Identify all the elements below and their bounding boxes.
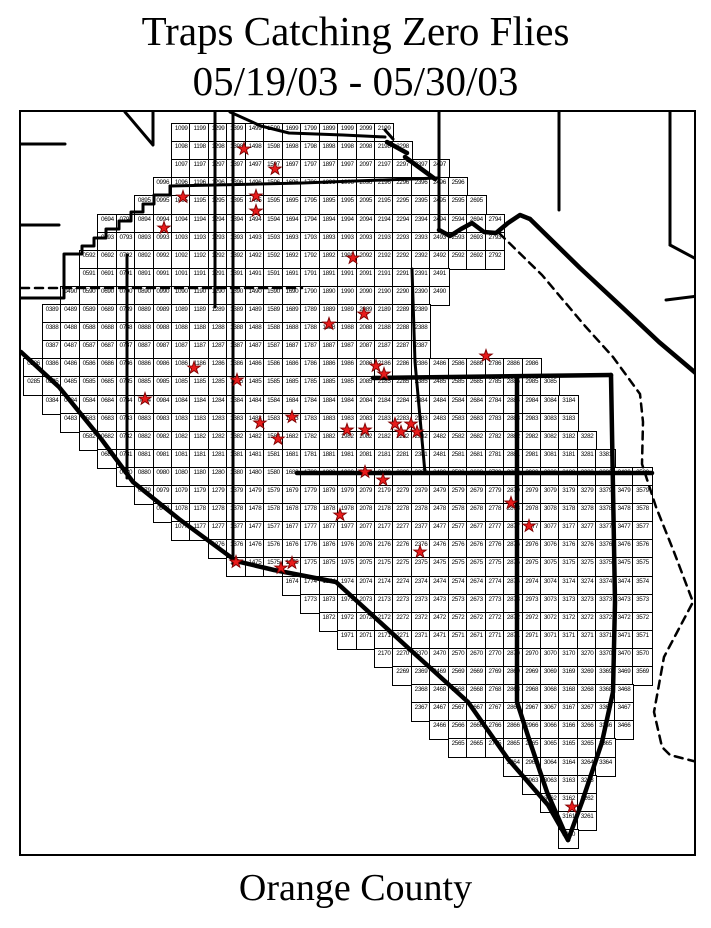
grid-cell-2384: 2384 [412,396,430,414]
grid-cell-1891: 1891 [320,269,338,287]
grid-cell-2882: 2882 [504,432,522,450]
grid-cell-1497: 1497 [246,160,264,178]
grid-cell-2478: 2478 [430,504,448,522]
grid-cell-3573: 3573 [633,595,651,613]
grid-cell-2884: 2884 [504,396,522,414]
grid-cell-2678: 2678 [467,504,485,522]
grid-cell-2296: 2296 [393,178,411,196]
grid-cell-2382: 2382 [412,432,430,450]
grid-cell-2771: 2771 [486,631,504,649]
grid-cell-1599: 1599 [264,124,282,142]
grid-cell-2280: 2280 [393,468,411,486]
grid-cell-1285: 1285 [209,377,227,395]
grid-cell-2286: 2286 [393,359,411,377]
grid-cell-0685: 0685 [98,377,116,395]
grid-cell-2394: 2394 [412,215,430,233]
grid-cell-1981: 1981 [338,450,356,468]
grid-cell-2783: 2783 [486,414,504,432]
grid-cell-1995: 1995 [338,196,356,214]
grid-cell-1578: 1578 [264,504,282,522]
grid-cell-1691: 1691 [283,269,301,287]
grid-cell-0991: 0991 [154,269,172,287]
grid-cell-1492: 1492 [246,251,264,269]
grid-cell-0790: 0790 [117,287,135,305]
grid-cell-1683: 1683 [283,414,301,432]
grid-cell-1991: 1991 [338,269,356,287]
grid-cell-1384: 1384 [227,396,245,414]
grid-cell-2870: 2870 [504,649,522,667]
grid-cell-1395: 1395 [227,196,245,214]
grid-cell-3161: 3161 [559,812,577,830]
grid-cell-1386: 1386 [227,359,245,377]
grid-cell-1775: 1775 [301,558,319,576]
grid-cell-3062: 3062 [541,794,559,812]
grid-cell-1793: 1793 [301,233,319,251]
grid-cell-0883: 0883 [135,414,153,432]
grid-cell-3579: 3579 [633,486,651,504]
grid-cell-2974: 2974 [523,577,541,595]
grid-cell-1787: 1787 [301,341,319,359]
grid-cell-2493: 2493 [430,233,448,251]
grid-cell-1185: 1185 [190,377,208,395]
grid-cell-2596: 2596 [449,178,467,196]
grid-cell-2479: 2479 [430,486,448,504]
grid-cell-2078: 2078 [357,504,375,522]
grid-cell-2181: 2181 [375,450,393,468]
grid-cell-2475: 2475 [430,558,448,576]
grid-cell-2676: 2676 [467,540,485,558]
grid-cell-1394: 1394 [227,215,245,233]
grid-cell-2874: 2874 [504,577,522,595]
grid-cell-1982: 1982 [338,432,356,450]
grid-cell-1890: 1890 [320,287,338,305]
grid-cell-2370: 2370 [412,649,430,667]
grid-cell-1095: 1095 [172,196,190,214]
grid-cell-1186: 1186 [190,359,208,377]
grid-cell-2271: 2271 [393,631,411,649]
grid-cell-2775: 2775 [486,558,504,576]
grid-cell-2978: 2978 [523,504,541,522]
grid-cell-3367: 3367 [596,703,614,721]
grid-cell-1777: 1777 [301,522,319,540]
grid-cell-3065: 3065 [541,739,559,757]
grid-cell-2386: 2386 [412,359,430,377]
grid-cell-2371: 2371 [412,631,430,649]
grid-cell-0989: 0989 [154,305,172,323]
grid-cell-1783: 1783 [301,414,319,432]
grid-cell-0285: 0285 [24,377,42,395]
grid-cell-1375: 1375 [227,558,245,576]
grid-cell-1985: 1985 [338,377,356,395]
grid-cell-0893: 0893 [135,233,153,251]
grid-cell-3172: 3172 [559,613,577,631]
grid-cell-2693: 2693 [467,233,485,251]
grid-cell-2175: 2175 [375,558,393,576]
grid-cell-2298: 2298 [393,142,411,160]
grid-cell-1677: 1677 [283,522,301,540]
grid-cell-2865: 2865 [504,739,522,757]
grid-cell-2076: 2076 [357,540,375,558]
grid-cell-2980: 2980 [523,468,541,486]
grid-cell-1195: 1195 [190,196,208,214]
grid-cell-1182: 1182 [190,432,208,450]
grid-cell-1994: 1994 [338,215,356,233]
grid-cell-2376: 2376 [412,540,430,558]
grid-cell-3169: 3169 [559,667,577,685]
grid-cell-3364: 3364 [596,758,614,776]
grid-cell-2871: 2871 [504,631,522,649]
grid-cell-0990: 0990 [154,287,172,305]
grid-cell-2091: 2091 [357,269,375,287]
grid-cell-3267: 3267 [578,703,596,721]
grid-cell-2466: 2466 [430,721,448,739]
grid-cell-2188: 2188 [375,323,393,341]
grid-cell-3074: 3074 [541,577,559,595]
grid-cell-2570: 2570 [449,649,467,667]
grid-cell-3069: 3069 [541,667,559,685]
grid-cell-2864: 2864 [504,758,522,776]
grid-cell-1087: 1087 [172,341,190,359]
grid-cell-3183: 3183 [559,414,577,432]
grid-cell-2174: 2174 [375,577,393,595]
grid-cell-3373: 3373 [596,595,614,613]
grid-cell-2368: 2368 [412,685,430,703]
grid-cell-1479: 1479 [246,486,264,504]
grid-cell-2084: 2084 [357,396,375,414]
grid-cell-2081: 2081 [357,450,375,468]
grid-cell-1684: 1684 [283,396,301,414]
grid-cell-2583: 2583 [449,414,467,432]
grid-cell-0782: 0782 [117,432,135,450]
grid-cell-3277: 3277 [578,522,596,540]
grid-cell-1297: 1297 [209,160,227,178]
grid-cell-1784: 1784 [301,396,319,414]
grid-cell-0584: 0584 [80,396,98,414]
grid-cell-1598: 1598 [264,142,282,160]
grid-cell-2283: 2283 [393,414,411,432]
grid-cell-2784: 2784 [486,396,504,414]
grid-cell-3472: 3472 [615,613,633,631]
grid-cell-1588: 1588 [264,323,282,341]
grid-cell-3264: 3264 [578,758,596,776]
grid-cell-1680: 1680 [283,468,301,486]
grid-cell-1886: 1886 [320,359,338,377]
grid-cell-0786: 0786 [117,359,135,377]
grid-cell-3471: 3471 [615,631,633,649]
grid-cell-2595: 2595 [449,196,467,214]
grid-cell-2071: 2071 [357,631,375,649]
grid-cell-1685: 1685 [283,377,301,395]
grid-cell-1181: 1181 [190,450,208,468]
grid-cell-1284: 1284 [209,396,227,414]
grid-cell-1396: 1396 [227,178,245,196]
grid-cell-2385: 2385 [412,377,430,395]
grid-cell-0387: 0387 [43,341,61,359]
grid-cell-2074: 2074 [357,577,375,595]
grid-cell-3079: 3079 [541,486,559,504]
grid-cell-2194: 2194 [375,215,393,233]
grid-cell-1590: 1590 [264,287,282,305]
grid-cell-2866: 2866 [504,721,522,739]
grid-cell-2191: 2191 [375,269,393,287]
grid-cell-2079: 2079 [357,486,375,504]
grid-cell-2965: 2965 [523,739,541,757]
grid-cell-2875: 2875 [504,558,522,576]
grid-cell-0689: 0689 [98,305,116,323]
grid-cell-2097: 2097 [357,160,375,178]
grid-cell-1389: 1389 [227,305,245,323]
grid-cell-3380: 3380 [596,468,614,486]
grid-cell-3374: 3374 [596,577,614,595]
grid-cell-0994: 0994 [154,215,172,233]
grid-cell-2774: 2774 [486,577,504,595]
grid-cell-2276: 2276 [393,540,411,558]
grid-cell-1792: 1792 [301,251,319,269]
grid-cell-1682: 1682 [283,432,301,450]
grid-cell-1788: 1788 [301,323,319,341]
grid-cell-1088: 1088 [172,323,190,341]
grid-cell-1278: 1278 [209,504,227,522]
grid-cell-2979: 2979 [523,486,541,504]
grid-cell-3279: 3279 [578,486,596,504]
grid-cell-1695: 1695 [283,196,301,214]
grid-cell-1977: 1977 [338,522,356,540]
grid-cell-1983: 1983 [338,414,356,432]
grid-cell-1988: 1988 [338,323,356,341]
grid-cell-1281: 1281 [209,450,227,468]
grid-cell-1391: 1391 [227,269,245,287]
grid-cell-1291: 1291 [209,269,227,287]
grid-cell-1089: 1089 [172,305,190,323]
grid-cell-2665: 2665 [467,739,485,757]
grid-cell-0683: 0683 [98,414,116,432]
grid-cell-3080: 3080 [541,468,559,486]
grid-cell-0691: 0691 [98,269,116,287]
grid-cell-2881: 2881 [504,450,522,468]
grid-cell-2192: 2192 [375,251,393,269]
grid-cell-3063: 3063 [541,776,559,794]
grid-cell-1790: 1790 [301,287,319,305]
boundary-ne-horizontal [666,296,694,300]
grid-cell-1098: 1098 [172,142,190,160]
grid-cell-1694: 1694 [283,215,301,233]
grid-cell-1290: 1290 [209,287,227,305]
grid-cell-2969: 2969 [523,667,541,685]
grid-cell-0992: 0992 [154,251,172,269]
grid-cell-0385: 0385 [43,377,61,395]
grid-cell-0784: 0784 [117,396,135,414]
grid-cell-1190: 1190 [190,287,208,305]
grid-cell-2379: 2379 [412,486,430,504]
grid-cell-1880: 1880 [320,468,338,486]
grid-cell-0792: 0792 [117,251,135,269]
grid-cell-2272: 2272 [393,613,411,631]
grid-cell-0582: 0582 [80,432,98,450]
grid-cell-2963: 2963 [523,776,541,794]
grid-cell-2269: 2269 [393,667,411,685]
grid-cell-3477: 3477 [615,522,633,540]
grid-cell-1192: 1192 [190,251,208,269]
grid-cell-3280: 3280 [578,468,596,486]
grid-cell-0791: 0791 [117,269,135,287]
grid-cell-2586: 2586 [449,359,467,377]
grid-cell-0489: 0489 [61,305,79,323]
grid-cell-2496: 2496 [430,178,448,196]
grid-cell-1782: 1782 [301,432,319,450]
grid-cell-3466: 3466 [615,721,633,739]
grid-cell-2490: 2490 [430,287,448,305]
grid-cell-1980: 1980 [338,468,356,486]
grid-cell-0780: 0780 [117,468,135,486]
grid-cell-0684: 0684 [98,396,116,414]
grid-cell-3085: 3085 [541,377,559,395]
grid-cell-2182: 2182 [375,432,393,450]
grid-cell-0787: 0787 [117,341,135,359]
grid-cell-3473: 3473 [615,595,633,613]
grid-cell-1686: 1686 [283,359,301,377]
grid-cell-2565: 2565 [449,739,467,757]
grid-cell-0486: 0486 [61,359,79,377]
grid-cell-1975: 1975 [338,558,356,576]
grid-cell-2976: 2976 [523,540,541,558]
grid-cell-1878: 1878 [320,504,338,522]
grid-cell-1295: 1295 [209,196,227,214]
grid-cell-2569: 2569 [449,667,467,685]
grid-cell-2773: 2773 [486,595,504,613]
grid-cell-1398: 1398 [227,142,245,160]
grid-cell-2377: 2377 [412,522,430,540]
grid-cell-1385: 1385 [227,377,245,395]
grid-cell-2868: 2868 [504,685,522,703]
grid-cell-2579: 2579 [449,486,467,504]
grid-cell-2971: 2971 [523,631,541,649]
grid-cell-2388: 2388 [412,323,430,341]
grid-cell-1986: 1986 [338,359,356,377]
grid-cell-1973: 1973 [338,595,356,613]
grid-cell-3082: 3082 [541,432,559,450]
grid-cell-2395: 2395 [412,196,430,214]
grid-cell-0988: 0988 [154,323,172,341]
grid-cell-3068: 3068 [541,685,559,703]
grid-cell-2378: 2378 [412,504,430,522]
grid-cell-2984: 2984 [523,396,541,414]
grid-cell-2184: 2184 [375,396,393,414]
grid-cell-1487: 1487 [246,341,264,359]
grid-cell-3178: 3178 [559,504,577,522]
grid-cell-1199: 1199 [190,124,208,142]
grid-cell-2977: 2977 [523,522,541,540]
grid-cell-2197: 2197 [375,160,393,178]
grid-cell-1091: 1091 [172,269,190,287]
grid-cell-0590: 0590 [80,287,98,305]
grid-cell-2469: 2469 [430,667,448,685]
grid-cell-3176: 3176 [559,540,577,558]
grid-cell-1877: 1877 [320,522,338,540]
grid-cell-1383: 1383 [227,414,245,432]
grid-cell-3372: 3372 [596,613,614,631]
grid-cell-1476: 1476 [246,540,264,558]
grid-cell-3476: 3476 [615,540,633,558]
grid-cell-1486: 1486 [246,359,264,377]
grid-cell-2092: 2092 [357,251,375,269]
grid-cell-0688: 0688 [98,323,116,341]
grid-cell-1594: 1594 [264,215,282,233]
grid-cell-1094: 1094 [172,215,190,233]
grid-cell-1984: 1984 [338,396,356,414]
grid-cell-0982: 0982 [154,432,172,450]
grid-cell-1897: 1897 [320,160,338,178]
grid-cell-1899: 1899 [320,124,338,142]
grid-cell-2082: 2082 [357,432,375,450]
grid-cell-2886: 2886 [504,359,522,377]
grid-cell-3475: 3475 [615,558,633,576]
grid-cell-1586: 1586 [264,359,282,377]
grid-cell-2674: 2674 [467,577,485,595]
grid-cell-2080: 2080 [357,468,375,486]
grid-cell-2981: 2981 [523,450,541,468]
grid-cell-1380: 1380 [227,468,245,486]
grid-cell-2584: 2584 [449,396,467,414]
grid-cell-1887: 1887 [320,341,338,359]
grid-cell-1078: 1078 [172,504,190,522]
grid-cell-2293: 2293 [393,233,411,251]
grid-cell-3262: 3262 [578,794,596,812]
grid-cell-2189: 2189 [375,305,393,323]
grid-cell-0995: 0995 [154,196,172,214]
grid-cell-3275: 3275 [578,558,596,576]
grid-cell-1579: 1579 [264,486,282,504]
grid-cell-1390: 1390 [227,287,245,305]
grid-cell-3165: 3165 [559,739,577,757]
grid-cell-1286: 1286 [209,359,227,377]
grid-cell-2171: 2171 [375,631,393,649]
grid-cell-3278: 3278 [578,504,596,522]
grid-cell-1893: 1893 [320,233,338,251]
grid-cell-2683: 2683 [467,414,485,432]
grid-cell-1675: 1675 [283,558,301,576]
grid-cell-1582: 1582 [264,432,282,450]
grid-cell-3072: 3072 [541,613,559,631]
grid-cell-2684: 2684 [467,396,485,414]
grid-cell-2088: 2088 [357,323,375,341]
grid-cell-3578: 3578 [633,504,651,522]
grid-cell-1696: 1696 [283,178,301,196]
grid-cell-1776: 1776 [301,540,319,558]
grid-cell-1998: 1998 [338,142,356,160]
grid-cell-2779: 2779 [486,486,504,504]
grid-cell-3266: 3266 [578,721,596,739]
grid-cell-1280: 1280 [209,468,227,486]
grid-cell-2675: 2675 [467,558,485,576]
grid-cell-2765: 2765 [486,739,504,757]
grid-cell-1086: 1086 [172,359,190,377]
grid-cell-3067: 3067 [541,703,559,721]
grid-cell-2793: 2793 [486,233,504,251]
grid-cell-2786: 2786 [486,359,504,377]
grid-cell-0986: 0986 [154,359,172,377]
grid-cell-3575: 3575 [633,558,651,576]
grid-cell-1873: 1873 [320,595,338,613]
grid-cell-1774: 1774 [301,577,319,595]
grid-cell-2077: 2077 [357,522,375,540]
grid-cell-2468: 2468 [430,685,448,703]
grid-cell-2270: 2270 [393,649,411,667]
boundary-top-left-diagonal [125,112,153,145]
grid-cell-1183: 1183 [190,414,208,432]
grid-cell-2289: 2289 [393,305,411,323]
grid-cell-3070: 3070 [541,649,559,667]
footer-block: Orange County [0,866,711,910]
